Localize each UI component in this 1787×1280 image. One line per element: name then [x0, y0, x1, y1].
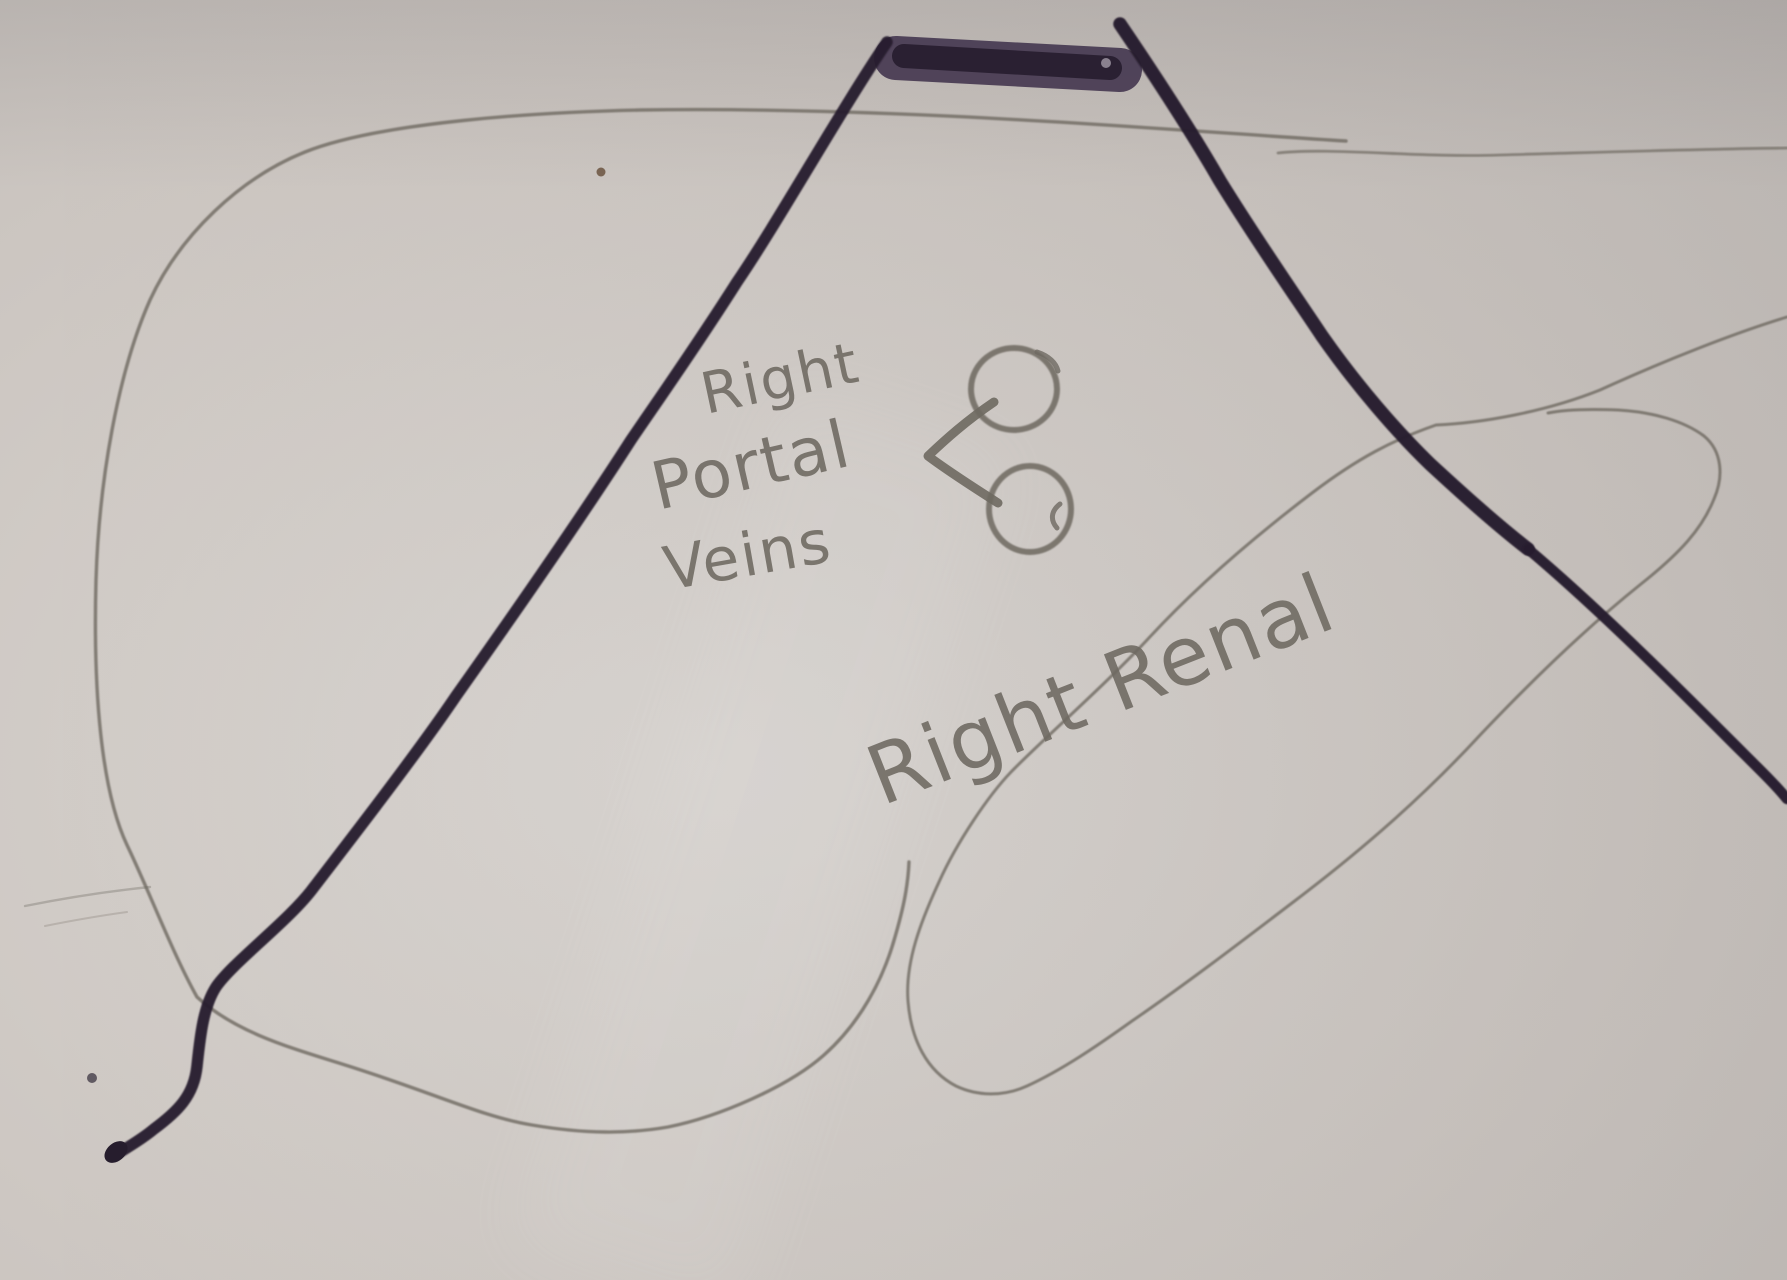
paper-speck-brown	[597, 168, 606, 177]
marker-bar-gap	[1101, 58, 1111, 68]
marker-apex-bar-core	[904, 56, 1110, 68]
sketch-canvas: Right Portal Veins Right Renal	[0, 0, 1787, 1280]
paper-speck-dark	[87, 1073, 97, 1083]
hand-drawn-anatomy-sketch-photo: Right Portal Veins Right Renal	[0, 0, 1787, 1280]
